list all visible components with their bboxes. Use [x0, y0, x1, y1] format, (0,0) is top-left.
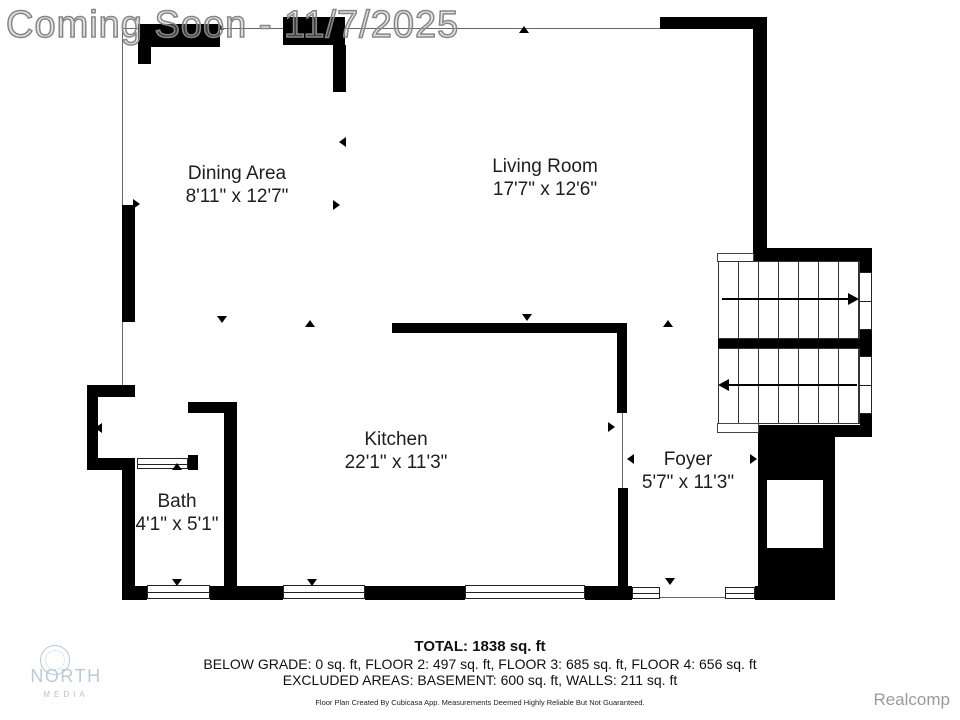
window-line-west-lower: [122, 322, 123, 385]
kitchen-foyer-divider-upper: [617, 323, 627, 413]
south-wall: [755, 586, 835, 600]
door-marker-icon: [663, 320, 673, 327]
door-marker-icon: [339, 137, 346, 147]
room-label-dining: Dining Area 8'11" x 12'7": [137, 163, 337, 208]
stair-arrow-down-icon: [718, 379, 729, 391]
dining-west-wall: [122, 205, 135, 322]
stair-landing-wall: [718, 339, 860, 348]
disclaimer-text: Floor Plan Created By Cubicasa App. Meas…: [0, 698, 960, 707]
entry-threshold-line: [660, 597, 725, 598]
south-wall: [365, 586, 465, 600]
wall-segment: [333, 45, 346, 92]
room-label-bath: Bath 4'1" x 5'1": [92, 491, 262, 536]
wall-segment: [860, 330, 872, 356]
room-name: Dining Area: [137, 163, 337, 185]
floor-areas-text: BELOW GRADE: 0 sq. ft, FLOOR 2: 497 sq. …: [0, 656, 960, 672]
door-marker-icon: [519, 26, 529, 33]
bath-closet-wall: [188, 455, 198, 470]
door-marker-icon: [665, 578, 675, 585]
stair-arrow-line: [729, 384, 857, 386]
window: [283, 585, 365, 599]
window: [632, 587, 660, 599]
stair-window: [859, 356, 872, 414]
wall-segment: [860, 414, 872, 425]
door-marker-icon: [608, 422, 615, 432]
wall-segment: [138, 47, 151, 64]
door-marker-icon: [95, 423, 102, 433]
room-dimensions: 22'1" x 11'3": [296, 451, 496, 474]
stair-window: [859, 272, 872, 330]
wall-segment: [758, 425, 872, 437]
south-wall: [210, 586, 283, 600]
wall-segment: [823, 437, 835, 597]
room-name: Bath: [92, 491, 262, 513]
south-wall: [122, 586, 147, 600]
stair-landing-bottom: [717, 423, 759, 433]
room-label-foyer: Foyer 5'7" x 11'3": [588, 449, 788, 494]
door-marker-icon: [307, 579, 317, 586]
floor-plan-page: Dining Area 8'11" x 12'7" Living Room 17…: [0, 0, 960, 720]
wall-segment: [660, 17, 767, 29]
door-marker-icon: [172, 463, 182, 470]
wall-segment: [753, 248, 872, 261]
room-name: Foyer: [588, 449, 788, 471]
north-media-logo-sub: MEDIA: [14, 690, 118, 699]
room-label-kitchen: Kitchen 22'1" x 11'3": [296, 429, 496, 474]
excluded-areas-text: EXCLUDED AREAS: BASEMENT: 600 sq. ft, WA…: [0, 672, 960, 688]
kitchen-top-wall: [392, 323, 627, 333]
door-marker-icon: [305, 320, 315, 327]
total-area-text: TOTAL: 1838 sq. ft: [0, 638, 960, 655]
room-dimensions: 17'7" x 12'6": [445, 178, 645, 201]
wall-segment: [860, 261, 872, 272]
door-marker-icon: [522, 314, 532, 321]
room-label-living: Living Room 17'7" x 12'6": [445, 156, 645, 201]
stair-arrow-line: [722, 298, 850, 300]
room-dimensions: 4'1" x 5'1": [92, 513, 262, 536]
wall-segment: [753, 17, 767, 258]
north-media-logo-name: NORTH: [14, 666, 118, 687]
stair-flight-upper: [718, 261, 860, 339]
stair-flight-lower: [718, 348, 860, 424]
stair-arrow-up-icon: [848, 293, 859, 305]
kitchen-foyer-divider-lower: [618, 488, 628, 587]
window: [465, 585, 585, 599]
room-name: Living Room: [445, 156, 645, 178]
realcomp-logo: Realcomp: [873, 690, 950, 710]
room-name: Kitchen: [296, 429, 496, 451]
coming-soon-watermark: Coming Soon - 11/7/2025: [6, 4, 459, 47]
south-wall: [585, 586, 632, 600]
window: [725, 587, 755, 599]
door-marker-icon: [217, 316, 227, 323]
door-marker-icon: [172, 579, 182, 586]
room-dimensions: 8'11" x 12'7": [137, 185, 337, 208]
room-dimensions: 5'7" x 11'3": [588, 471, 788, 494]
window: [147, 585, 210, 599]
window-line-west-upper: [122, 28, 123, 205]
